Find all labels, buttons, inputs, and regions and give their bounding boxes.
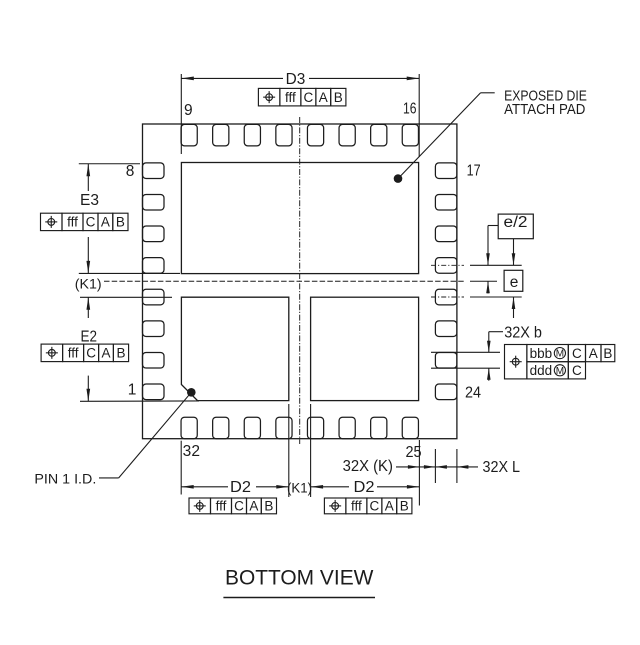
svg-text:BOTTOM VIEW: BOTTOM VIEW <box>225 565 374 589</box>
svg-text:25: 25 <box>406 444 422 461</box>
svg-text:D2: D2 <box>230 479 251 496</box>
svg-text:C: C <box>234 499 244 514</box>
svg-text:E3: E3 <box>80 192 99 209</box>
svg-text:ATTACH PAD: ATTACH PAD <box>504 101 585 118</box>
svg-text:bbb: bbb <box>530 346 553 361</box>
svg-text:B: B <box>334 90 343 105</box>
svg-text:D3: D3 <box>286 71 306 88</box>
svg-text:8: 8 <box>126 163 135 180</box>
svg-text:fff: fff <box>351 499 362 514</box>
svg-text:32X L: 32X L <box>483 459 521 476</box>
svg-text:A: A <box>101 215 110 230</box>
svg-text:32X b: 32X b <box>504 325 542 342</box>
svg-text:A: A <box>319 90 328 105</box>
svg-text:fff: fff <box>68 346 79 361</box>
svg-text:ddd: ddd <box>530 363 553 378</box>
svg-text:(K1): (K1) <box>287 480 312 496</box>
svg-text:C: C <box>304 90 314 105</box>
svg-text:C: C <box>86 215 96 230</box>
svg-text:B: B <box>264 499 273 514</box>
svg-text:M: M <box>556 366 564 377</box>
svg-text:(K1): (K1) <box>75 275 102 291</box>
svg-text:16: 16 <box>403 101 417 118</box>
svg-text:A: A <box>385 499 394 514</box>
svg-text:C: C <box>86 346 96 361</box>
svg-text:1: 1 <box>128 382 137 399</box>
svg-text:E2: E2 <box>81 328 98 345</box>
svg-text:PIN 1 I.D.: PIN 1 I.D. <box>34 472 96 488</box>
svg-text:M: M <box>556 349 564 360</box>
svg-text:C: C <box>572 346 582 361</box>
svg-text:fff: fff <box>67 215 78 230</box>
svg-text:24: 24 <box>465 384 481 401</box>
svg-text:A: A <box>589 346 598 361</box>
svg-text:C: C <box>370 499 380 514</box>
svg-text:32X (K): 32X (K) <box>343 458 393 475</box>
svg-text:fff: fff <box>216 499 227 514</box>
svg-text:B: B <box>116 346 125 361</box>
svg-text:D2: D2 <box>354 479 375 496</box>
svg-text:B: B <box>603 346 612 361</box>
svg-text:e/2: e/2 <box>504 214 528 231</box>
svg-text:C: C <box>572 363 582 378</box>
svg-text:e: e <box>510 274 519 291</box>
svg-text:A: A <box>101 346 110 361</box>
svg-text:fff: fff <box>285 90 296 105</box>
svg-text:A: A <box>249 499 258 514</box>
svg-text:B: B <box>400 499 409 514</box>
svg-text:B: B <box>116 215 125 230</box>
svg-text:9: 9 <box>184 102 193 119</box>
svg-text:32: 32 <box>183 443 200 460</box>
svg-text:17: 17 <box>467 163 481 180</box>
